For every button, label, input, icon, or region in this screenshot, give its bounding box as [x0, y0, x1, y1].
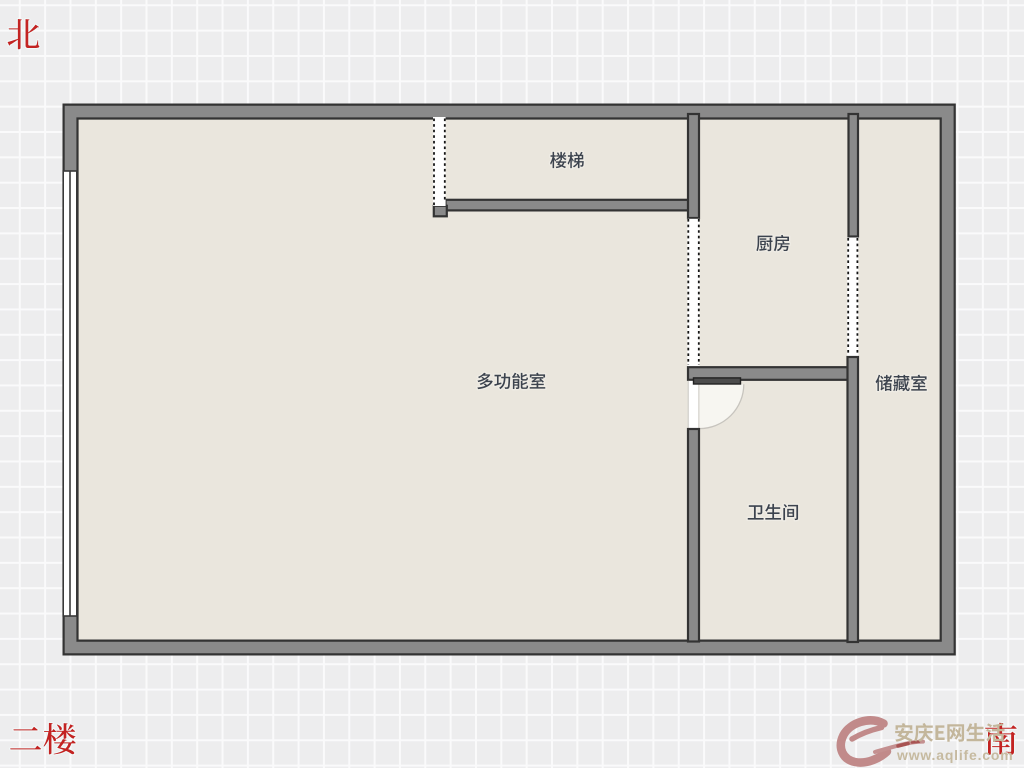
svg-text:www.aqlife.com: www.aqlife.com	[896, 747, 1013, 763]
